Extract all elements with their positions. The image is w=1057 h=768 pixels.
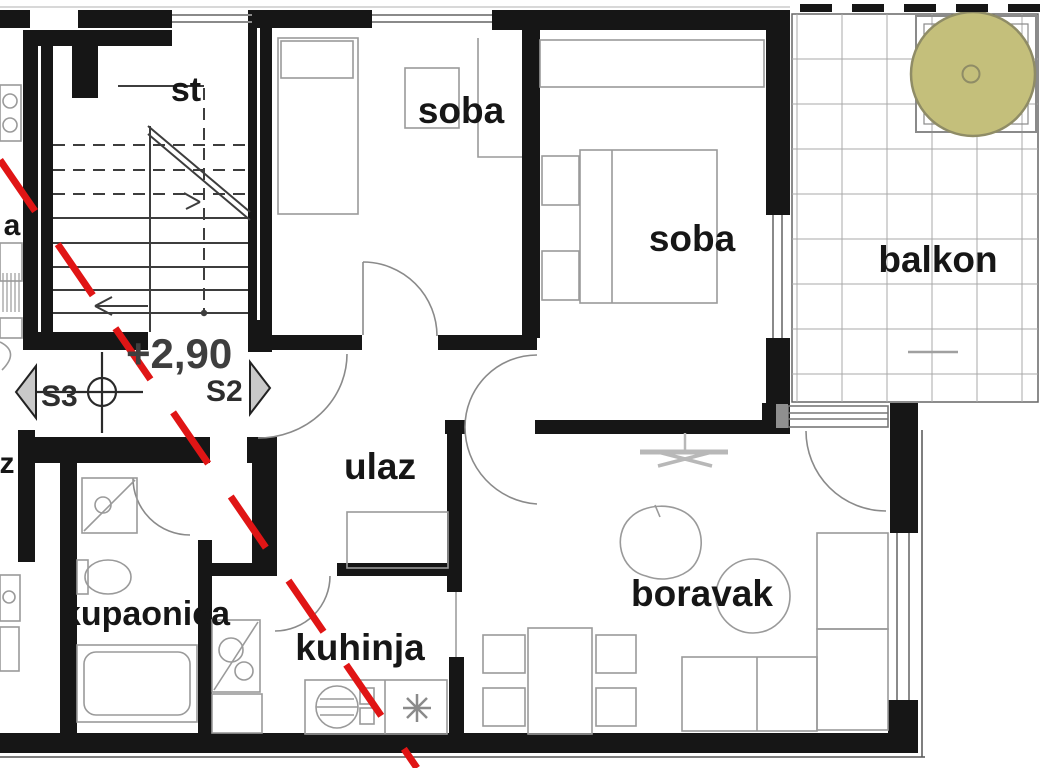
wardrobe bbox=[540, 40, 764, 87]
bedroom2-furniture bbox=[540, 40, 764, 303]
hob-symbol bbox=[403, 694, 431, 722]
toilet-tank bbox=[77, 560, 88, 594]
chair bbox=[483, 688, 525, 726]
label-kitchen: kuhinja bbox=[295, 627, 425, 668]
chair bbox=[483, 635, 525, 673]
nightstand bbox=[542, 156, 579, 205]
toilet bbox=[85, 560, 131, 594]
section-arrow-right-icon bbox=[250, 362, 270, 414]
ceiling-fan-icon bbox=[640, 433, 728, 466]
label-living-room: boravak bbox=[631, 573, 773, 614]
section-label-s2: S2 bbox=[206, 375, 243, 408]
hall-furniture bbox=[347, 512, 448, 568]
windows bbox=[172, 15, 909, 700]
sofa-section bbox=[817, 533, 888, 629]
label-bathroom: kupaonica bbox=[62, 595, 231, 633]
section-arrow-left-icon bbox=[16, 366, 36, 418]
bathtub bbox=[77, 645, 197, 722]
floor-plan-page: S3 S2 +2,90 st soba soba balkon ulaz kup… bbox=[0, 0, 1057, 768]
label-bedroom2: soba bbox=[649, 218, 736, 259]
nightstand bbox=[542, 251, 579, 300]
hall-closet bbox=[347, 512, 448, 568]
label-adjacent-lower: z bbox=[0, 447, 15, 480]
label-adjacent-upper: a bbox=[4, 209, 21, 242]
bedroom2-door-arc-down bbox=[465, 427, 537, 504]
bedroom1-door-arc bbox=[363, 262, 437, 336]
bathroom-door-arc bbox=[133, 478, 190, 535]
sofa-section bbox=[817, 629, 888, 730]
entry-door-arc bbox=[258, 354, 347, 438]
single-bed bbox=[278, 38, 358, 214]
stair-handrail bbox=[148, 126, 250, 220]
sofa-section bbox=[682, 657, 817, 731]
kitchen-cabinet bbox=[212, 694, 262, 733]
dining-table bbox=[528, 628, 592, 734]
pillow bbox=[281, 41, 353, 78]
label-bedroom1: soba bbox=[418, 90, 505, 131]
label-balcony: balkon bbox=[878, 239, 997, 280]
tree-icon bbox=[911, 12, 1035, 136]
balcony-area bbox=[792, 8, 1046, 402]
elevation-label: +2,90 bbox=[126, 330, 232, 377]
chair bbox=[596, 688, 636, 726]
chair bbox=[596, 635, 636, 673]
staircase bbox=[53, 86, 250, 332]
bedroom2-door-arc-up bbox=[465, 355, 537, 427]
balcony-sliding-door bbox=[776, 404, 888, 428]
label-entrance: ulaz bbox=[344, 446, 416, 487]
balcony-door-arc bbox=[806, 431, 886, 511]
label-stairwell: st bbox=[171, 71, 201, 109]
section-label-s3: S3 bbox=[41, 380, 78, 413]
floor-plan-drawing: S3 S2 +2,90 st soba soba balkon ulaz kup… bbox=[0, 0, 1057, 768]
armchair bbox=[620, 506, 701, 579]
